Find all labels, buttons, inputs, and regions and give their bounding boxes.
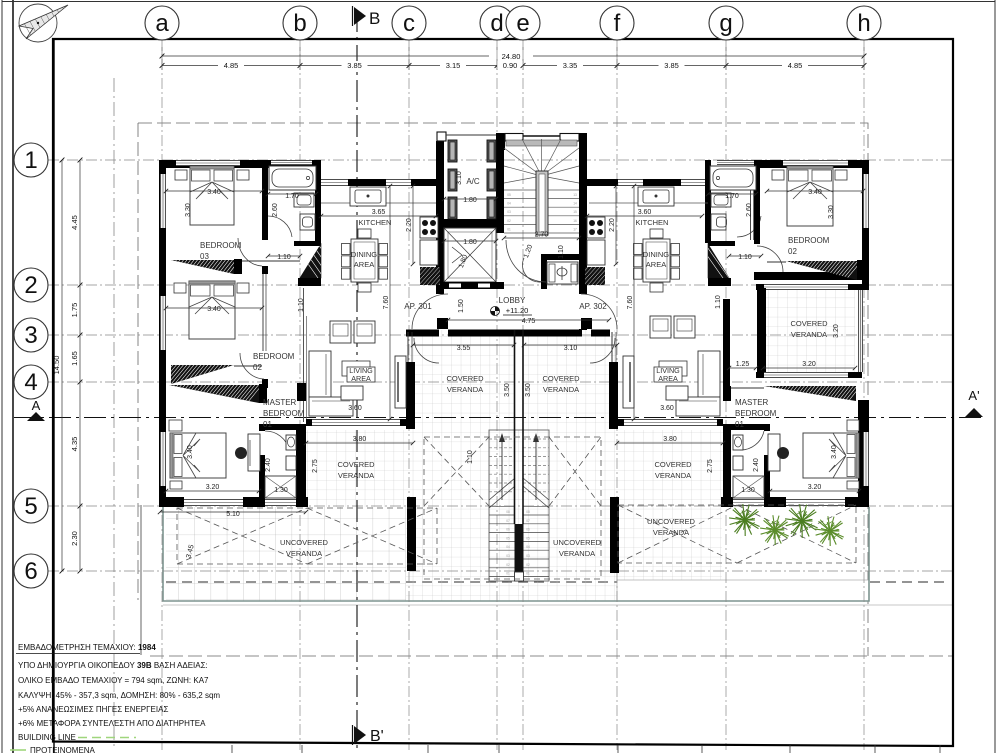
- svg-text:1.50: 1.50: [458, 299, 465, 313]
- svg-text:BEDROOM: BEDROOM: [263, 409, 305, 418]
- svg-text:AP. 301: AP. 301: [404, 302, 432, 311]
- svg-text:ΥΠΟ ΔΗΜΙΟΥΡΓΙΑ ΟΙΚΟΠΕΔΟΥ 39Β Β: ΥΠΟ ΔΗΜΙΟΥΡΓΙΑ ΟΙΚΟΠΕΔΟΥ 39Β ΒΑΣΗ ΑΔΕΙΑΣ…: [18, 661, 208, 670]
- svg-text:02: 02: [253, 363, 262, 372]
- svg-text:04: 04: [526, 545, 530, 549]
- svg-text:UNCOVERED: UNCOVERED: [647, 517, 696, 526]
- svg-text:1.30: 1.30: [741, 487, 755, 494]
- svg-text:COVERED: COVERED: [337, 460, 375, 469]
- svg-text:2.30: 2.30: [70, 531, 79, 546]
- svg-text:A: A: [32, 398, 41, 413]
- svg-text:1.10: 1.10: [298, 298, 305, 312]
- svg-text:14.50: 14.50: [52, 356, 61, 375]
- svg-text:07: 07: [526, 519, 530, 523]
- svg-text:01: 01: [263, 420, 272, 429]
- svg-text:6: 6: [24, 558, 37, 585]
- svg-text:4.35: 4.35: [70, 437, 79, 452]
- svg-text:1.10: 1.10: [715, 295, 722, 309]
- svg-text:VERANDA: VERANDA: [653, 528, 689, 537]
- svg-text:KITCHEN: KITCHEN: [359, 218, 392, 227]
- svg-text:B: B: [369, 9, 380, 28]
- svg-text:1.65: 1.65: [70, 351, 79, 366]
- svg-text:03: 03: [507, 210, 511, 214]
- svg-text:e: e: [516, 10, 529, 37]
- svg-text:LOBBY: LOBBY: [499, 296, 526, 305]
- svg-text:1.10: 1.10: [277, 254, 291, 261]
- svg-text:16: 16: [573, 219, 577, 223]
- svg-text:4.85: 4.85: [788, 61, 803, 70]
- svg-text:ΚΑΛΥΨΗ: 45% - 357,3 sqm, ΔΟΜΗΣ: ΚΑΛΥΨΗ: 45% - 357,3 sqm, ΔΟΜΗΣΗ: 80% - 6…: [18, 691, 220, 700]
- svg-text:1.75: 1.75: [70, 303, 79, 318]
- svg-text:01: 01: [507, 227, 511, 231]
- svg-text:4: 4: [24, 369, 37, 396]
- svg-text:2.40: 2.40: [753, 458, 760, 472]
- svg-text:3.55: 3.55: [457, 345, 471, 352]
- svg-text:1.10: 1.10: [738, 254, 752, 261]
- svg-text:3: 3: [24, 322, 37, 349]
- svg-text:VERANDA: VERANDA: [447, 385, 483, 394]
- svg-text:2.20: 2.20: [609, 218, 616, 232]
- svg-text:06: 06: [506, 528, 510, 532]
- svg-text:01: 01: [735, 420, 744, 429]
- svg-text:04: 04: [507, 202, 511, 206]
- svg-text:3.10: 3.10: [564, 345, 578, 352]
- svg-text:A/C: A/C: [466, 177, 480, 186]
- svg-text:ΠΡΟΤΕΙΝΟΜΕΝΑ: ΠΡΟΤΕΙΝΟΜΕΝΑ: [30, 746, 96, 753]
- svg-text:VERANDA: VERANDA: [791, 330, 827, 339]
- svg-text:2.75: 2.75: [707, 459, 714, 473]
- svg-text:VERANDA: VERANDA: [286, 549, 322, 558]
- svg-text:3.40: 3.40: [187, 445, 194, 459]
- svg-text:02: 02: [526, 563, 530, 567]
- svg-text:VERANDA: VERANDA: [338, 471, 374, 480]
- svg-text:3.40: 3.40: [207, 189, 221, 196]
- svg-text:08: 08: [506, 510, 510, 514]
- svg-text:ΟΛΙΚΟ ΕΜΒΑΔΟ ΤΕΜΑΧΙΟΥ = 794 sq: ΟΛΙΚΟ ΕΜΒΑΔΟ ΤΕΜΑΧΙΟΥ = 794 sqm, ΖΩΝΗ: Κ…: [18, 676, 209, 685]
- svg-text:5: 5: [24, 493, 37, 520]
- svg-text:3.10: 3.10: [456, 171, 463, 185]
- svg-text:3.50: 3.50: [525, 383, 532, 397]
- svg-text:AP. 302: AP. 302: [579, 302, 607, 311]
- svg-text:2.70: 2.70: [535, 232, 549, 239]
- svg-text:17: 17: [573, 227, 577, 231]
- svg-text:3.15: 3.15: [446, 61, 461, 70]
- svg-text:3.40: 3.40: [831, 445, 838, 459]
- svg-text:1.70: 1.70: [285, 193, 299, 200]
- svg-text:AREA: AREA: [658, 374, 678, 383]
- svg-text:1.25: 1.25: [736, 361, 750, 368]
- svg-text:4.85: 4.85: [224, 61, 239, 70]
- svg-text:h: h: [857, 10, 870, 37]
- svg-text:3.80: 3.80: [353, 436, 367, 443]
- svg-text:+6% ΜΕΤΑΦΟΡΑ ΣΥΝΤΕΛΕΣΤΗ ΑΠΟ ΔΙ: +6% ΜΕΤΑΦΟΡΑ ΣΥΝΤΕΛΕΣΤΗ ΑΠΟ ΔΙΑΤΗΡΗΤΕΑ: [18, 719, 206, 728]
- svg-text:05: 05: [507, 193, 511, 197]
- svg-text:15: 15: [573, 210, 577, 214]
- svg-text:c: c: [403, 10, 415, 37]
- svg-text:DINING: DINING: [351, 250, 377, 259]
- svg-text:7.60: 7.60: [383, 296, 390, 310]
- svg-text:2.75: 2.75: [312, 459, 319, 473]
- svg-text:BEDROOM: BEDROOM: [253, 352, 295, 361]
- svg-text:AREA: AREA: [351, 374, 371, 383]
- svg-text:3.50: 3.50: [504, 383, 511, 397]
- svg-text:d: d: [490, 10, 503, 37]
- svg-text:MASTER: MASTER: [263, 398, 297, 407]
- svg-text:0.90: 0.90: [503, 61, 518, 70]
- svg-text:3.40: 3.40: [808, 189, 822, 196]
- svg-text:3.85: 3.85: [664, 61, 679, 70]
- svg-text:DINING: DINING: [643, 250, 669, 259]
- svg-text:2.40: 2.40: [265, 458, 272, 472]
- svg-text:02: 02: [506, 563, 510, 567]
- svg-text:MASTER: MASTER: [735, 398, 769, 407]
- svg-text:+11.20: +11.20: [506, 306, 529, 315]
- svg-text:3.30: 3.30: [185, 203, 192, 217]
- svg-text:AREA: AREA: [646, 260, 666, 269]
- svg-text:08: 08: [526, 510, 530, 514]
- svg-text:05: 05: [506, 536, 510, 540]
- svg-text:AREA: AREA: [354, 260, 374, 269]
- svg-text:2.60: 2.60: [272, 203, 279, 217]
- svg-text:g: g: [719, 10, 732, 37]
- svg-text:a: a: [155, 10, 169, 37]
- svg-text:03: 03: [526, 554, 530, 558]
- svg-text:5.10: 5.10: [226, 511, 240, 518]
- svg-text:BUILDING LINE: BUILDING LINE: [18, 733, 76, 742]
- svg-text:COVERED: COVERED: [654, 460, 692, 469]
- svg-text:3.20: 3.20: [206, 484, 220, 491]
- svg-text:13: 13: [573, 193, 577, 197]
- svg-text:+5% ΑΝΑΝΕΩΣΙΜΕΣ ΠΗΓΕΣ ΕΝΕΡΓΕΙΑ: +5% ΑΝΑΝΕΩΣΙΜΕΣ ΠΗΓΕΣ ΕΝΕΡΓΕΙΑΣ: [18, 705, 168, 714]
- svg-text:b: b: [293, 10, 306, 37]
- svg-text:1: 1: [24, 147, 37, 174]
- svg-text:03: 03: [200, 252, 209, 261]
- svg-text:02: 02: [507, 219, 511, 223]
- svg-text:1.10: 1.10: [558, 245, 565, 259]
- svg-text:COVERED: COVERED: [790, 319, 828, 328]
- svg-text:1.30: 1.30: [274, 487, 288, 494]
- svg-text:7.60: 7.60: [627, 296, 634, 310]
- svg-text:03: 03: [506, 554, 510, 558]
- svg-text:4.75: 4.75: [522, 318, 536, 325]
- svg-text:1.10: 1.10: [467, 450, 474, 464]
- svg-text:VERANDA: VERANDA: [543, 385, 579, 394]
- svg-text:VERANDA: VERANDA: [655, 471, 691, 480]
- svg-text:UNCOVERED: UNCOVERED: [553, 538, 602, 547]
- svg-text:3.60: 3.60: [660, 405, 674, 412]
- svg-text:3.80: 3.80: [663, 436, 677, 443]
- svg-text:1.80: 1.80: [463, 239, 477, 246]
- svg-text:2.60: 2.60: [746, 203, 753, 217]
- svg-text:3.60: 3.60: [348, 405, 362, 412]
- svg-text:01: 01: [506, 572, 510, 576]
- svg-text:14: 14: [573, 202, 577, 206]
- svg-text:f: f: [614, 10, 621, 37]
- svg-text:BEDROOM: BEDROOM: [788, 236, 830, 245]
- svg-text:3.65: 3.65: [372, 209, 386, 216]
- svg-text:4.45: 4.45: [70, 215, 79, 230]
- svg-text:KITCHEN: KITCHEN: [636, 218, 669, 227]
- svg-text:04: 04: [506, 545, 510, 549]
- svg-text:01: 01: [526, 572, 530, 576]
- svg-text:3.35: 3.35: [563, 61, 578, 70]
- svg-text:BEDROOM: BEDROOM: [200, 241, 242, 250]
- svg-text:1.70: 1.70: [725, 193, 739, 200]
- svg-text:06: 06: [526, 528, 530, 532]
- svg-text:COVERED: COVERED: [542, 374, 580, 383]
- svg-text:3.85: 3.85: [347, 61, 362, 70]
- svg-text:2.20: 2.20: [406, 218, 413, 232]
- svg-text:2: 2: [24, 272, 37, 299]
- svg-text:05: 05: [526, 536, 530, 540]
- svg-text:3.20: 3.20: [808, 484, 822, 491]
- svg-text:3.40: 3.40: [207, 306, 221, 313]
- svg-text:3.20: 3.20: [802, 361, 816, 368]
- svg-text:UNCOVERED: UNCOVERED: [280, 538, 329, 547]
- svg-text:COVERED: COVERED: [446, 374, 484, 383]
- svg-text:3.30: 3.30: [828, 205, 835, 219]
- svg-text:B': B': [370, 728, 384, 745]
- svg-text:1.80: 1.80: [463, 197, 477, 204]
- svg-text:07: 07: [506, 519, 510, 523]
- svg-text:24.80: 24.80: [502, 52, 521, 61]
- svg-text:A': A': [968, 388, 979, 403]
- svg-text:02: 02: [788, 247, 797, 256]
- svg-text:3.60: 3.60: [638, 209, 652, 216]
- svg-text:BEDROOM: BEDROOM: [735, 409, 777, 418]
- svg-text:VERANDA: VERANDA: [559, 549, 595, 558]
- svg-text:3.20: 3.20: [833, 324, 840, 338]
- svg-text:ΕΜΒΑΔΟΜΕΤΡΗΣΗ ΤΕΜΑΧΙΟΥ: 1984: ΕΜΒΑΔΟΜΕΤΡΗΣΗ ΤΕΜΑΧΙΟΥ: 1984: [18, 643, 156, 652]
